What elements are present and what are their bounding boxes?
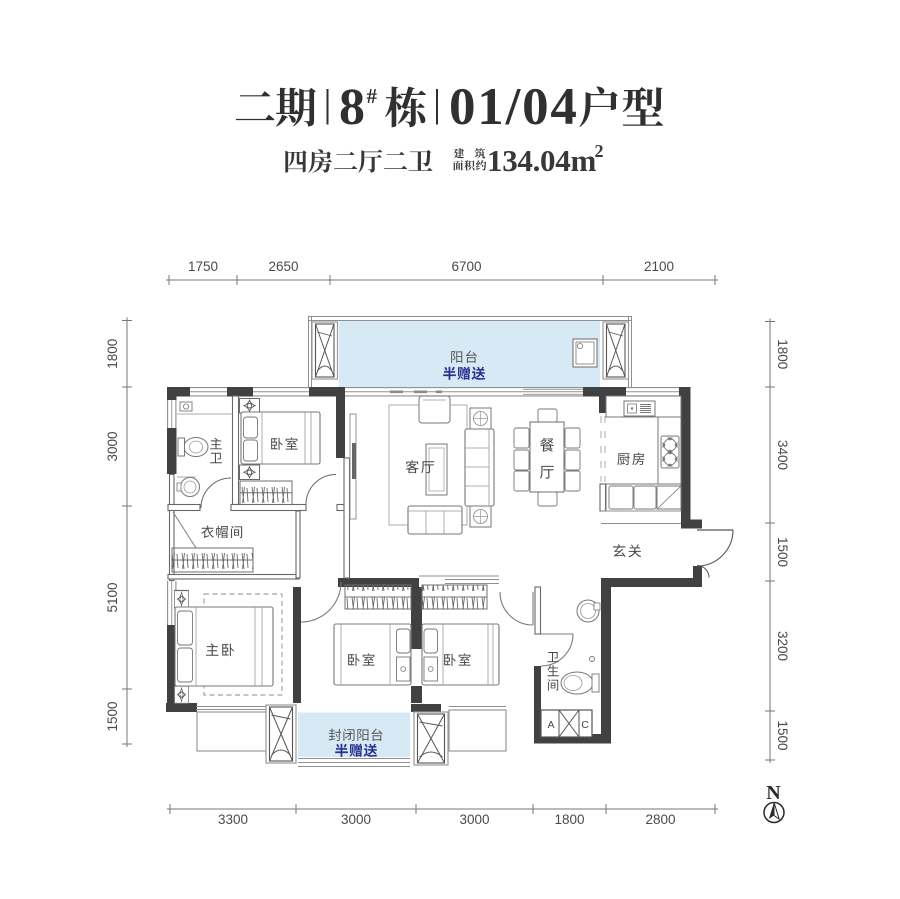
svg-text:8: 8: [339, 79, 365, 136]
svg-text:3000: 3000: [341, 812, 371, 827]
svg-text:2: 2: [595, 141, 604, 161]
svg-text:134.04m: 134.04m: [487, 143, 596, 178]
svg-text:C: C: [581, 719, 589, 731]
svg-text:2650: 2650: [268, 259, 298, 274]
svg-text:5100: 5100: [105, 582, 120, 612]
svg-text:1800: 1800: [775, 339, 790, 369]
svg-text:2100: 2100: [644, 259, 674, 274]
svg-text:3300: 3300: [218, 812, 248, 827]
svg-text:1800: 1800: [105, 339, 120, 369]
svg-text:3200: 3200: [775, 631, 790, 661]
svg-text:3000: 3000: [105, 431, 120, 461]
svg-text:01/04: 01/04: [449, 78, 579, 136]
svg-text:#: #: [367, 84, 378, 108]
svg-text:1750: 1750: [188, 259, 218, 274]
svg-text:1800: 1800: [554, 812, 584, 827]
svg-text:1500: 1500: [105, 701, 120, 731]
svg-text:1500: 1500: [775, 720, 790, 750]
svg-text:3400: 3400: [775, 440, 790, 470]
svg-text:N: N: [766, 782, 781, 804]
svg-text:1500: 1500: [775, 537, 790, 567]
svg-text:A: A: [547, 719, 554, 731]
svg-text:3000: 3000: [459, 812, 489, 827]
svg-text:2800: 2800: [645, 812, 675, 827]
svg-text:6700: 6700: [451, 259, 481, 274]
